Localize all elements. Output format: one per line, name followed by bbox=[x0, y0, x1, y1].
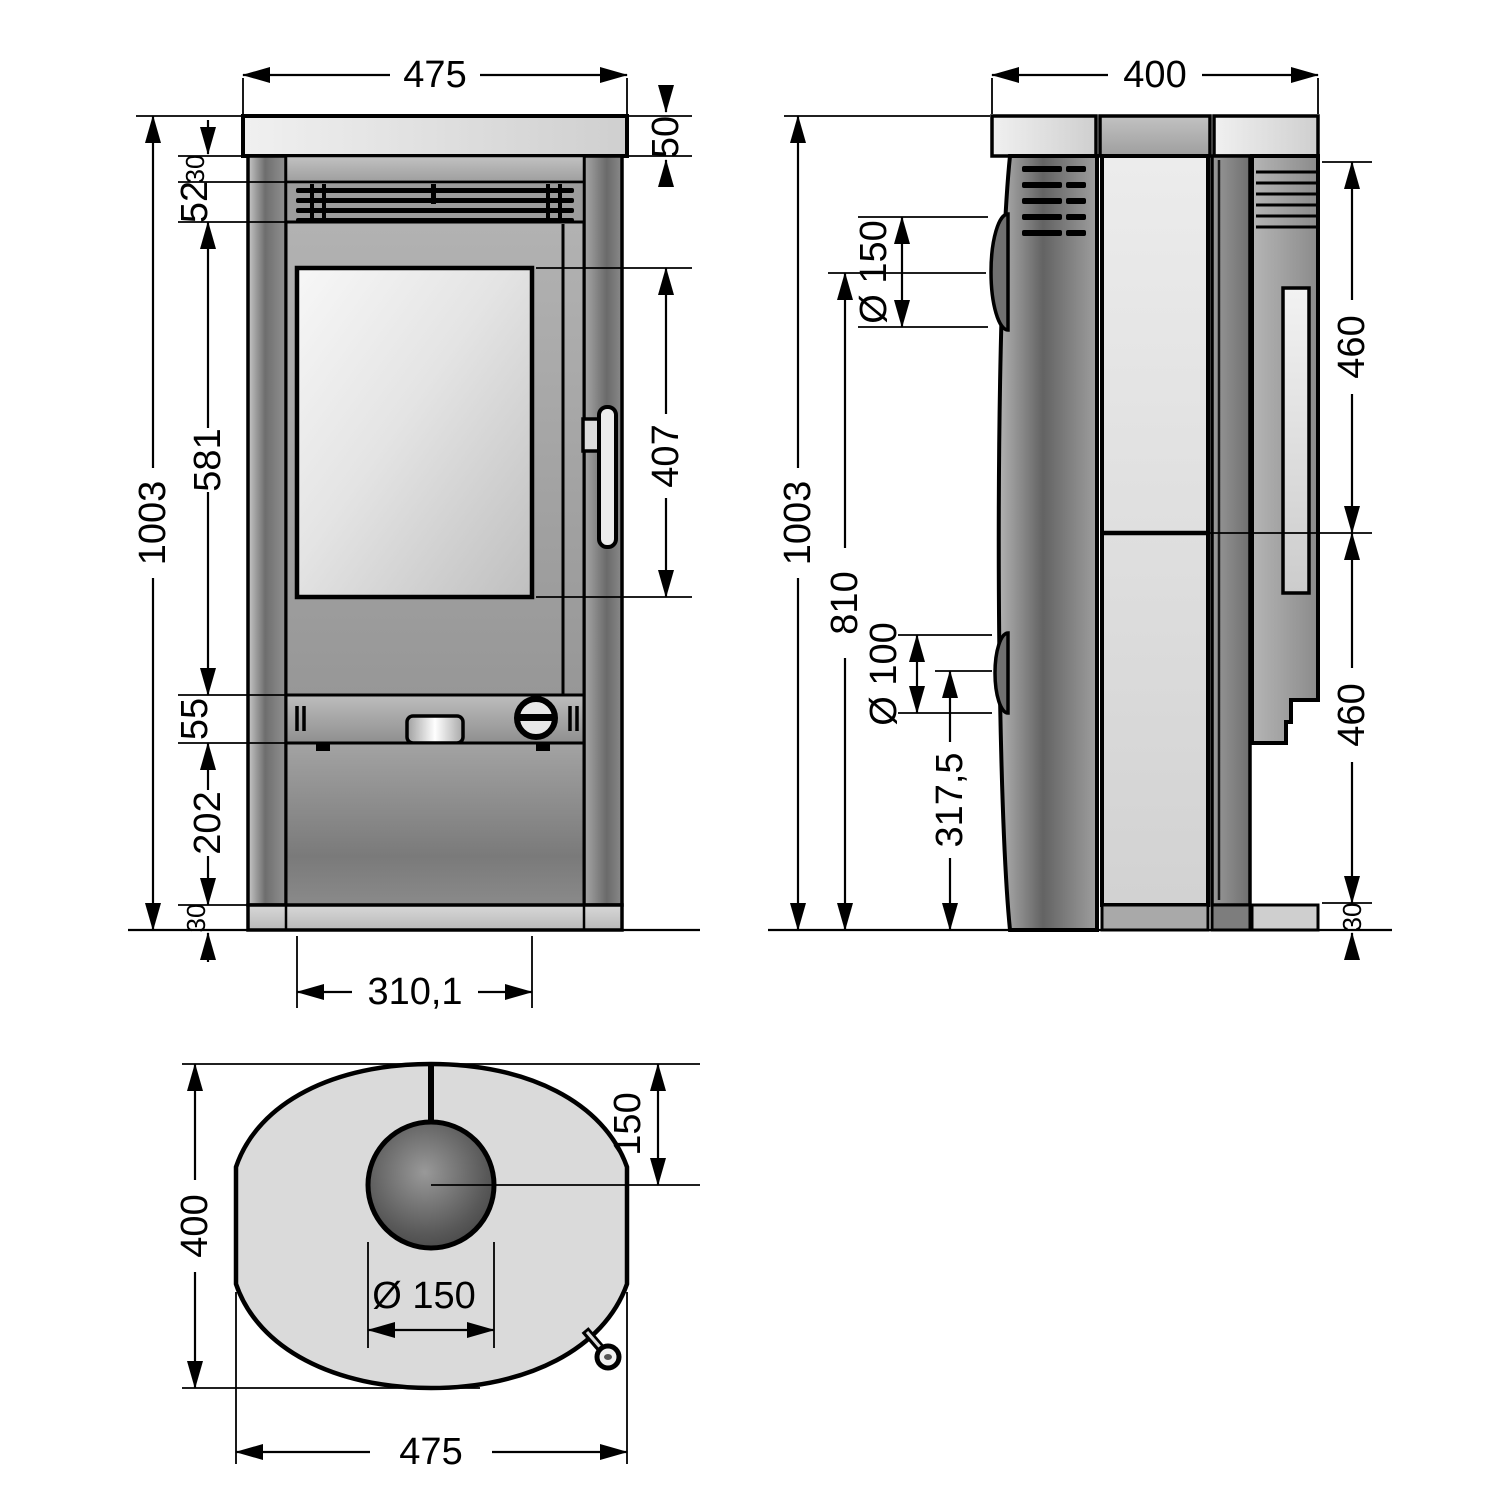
glass-edge-sliver bbox=[1283, 288, 1309, 593]
door-handle bbox=[599, 407, 616, 547]
dim-label-door-area: 581 bbox=[187, 428, 229, 491]
side-top-plate-front bbox=[1214, 116, 1318, 156]
dim-label-outlet-diameter: Ø 100 bbox=[863, 622, 905, 726]
dim-side-depth: 400 bbox=[992, 54, 1318, 114]
panel-nub-right bbox=[536, 743, 550, 751]
dim-label-side-total: 1003 bbox=[777, 481, 819, 566]
dim-label-side-depth: 400 bbox=[1123, 54, 1186, 96]
dim-front-door-width: 310,1 bbox=[297, 936, 532, 1013]
front-view: 475 50 30 52 581 55 202 30 1003 407 bbox=[128, 54, 700, 1013]
left-column bbox=[248, 156, 286, 905]
dim-label-door-width: 310,1 bbox=[367, 971, 462, 1013]
dim-label-front-upper: 460 bbox=[1331, 315, 1373, 378]
stone-side-panel bbox=[1102, 156, 1208, 905]
top-strip bbox=[286, 156, 584, 182]
glass-window bbox=[297, 268, 532, 597]
drawing-svg: 475 50 30 52 581 55 202 30 1003 407 bbox=[0, 0, 1500, 1500]
base-plate bbox=[248, 905, 622, 930]
ash-drawer-handle bbox=[407, 716, 463, 743]
dim-label-plate-height: 50 bbox=[645, 116, 687, 158]
side-view: 400 1003 810 Ø 150 Ø 100 317,5 460 bbox=[768, 54, 1392, 960]
side-base-frame bbox=[1212, 905, 1250, 930]
knob-slot bbox=[520, 714, 552, 721]
dim-side-base: 30 bbox=[1337, 903, 1367, 960]
dim-label-band: 55 bbox=[174, 698, 216, 740]
dim-label-front-width: 475 bbox=[403, 54, 466, 96]
lower-panel bbox=[286, 743, 584, 905]
front-frame-strip bbox=[1212, 156, 1250, 905]
top-view: 400 150 Ø 150 475 bbox=[174, 1064, 700, 1473]
top-plate bbox=[243, 116, 627, 156]
side-top-plate-mid bbox=[1100, 116, 1210, 156]
dim-label-front-lower: 460 bbox=[1331, 683, 1373, 746]
dim-front-plate-height: 50 bbox=[624, 86, 692, 186]
dim-label-flue-diameter: Ø 150 bbox=[853, 220, 895, 324]
dim-label-vent: 52 bbox=[174, 181, 216, 223]
dim-label-top-depth: 400 bbox=[174, 1194, 216, 1257]
dim-label-top-flue-diameter: Ø 150 bbox=[372, 1275, 476, 1317]
dim-side-outlet-diameter: Ø 100 bbox=[863, 622, 992, 726]
dim-side-front-lower: 460 bbox=[1322, 533, 1373, 903]
handle-ball-center bbox=[604, 1354, 612, 1360]
dim-label-outlet-height: 317,5 bbox=[929, 752, 971, 847]
dim-label-top-width: 475 bbox=[399, 1431, 462, 1473]
dim-label-lower-panel: 202 bbox=[187, 791, 229, 854]
outlet-collar-bulge bbox=[995, 633, 1008, 713]
dim-front-width-top: 475 bbox=[243, 54, 627, 114]
dim-label-side-base: 30 bbox=[1337, 903, 1367, 932]
side-base-stone bbox=[1102, 905, 1208, 930]
dim-label-flue-height: 810 bbox=[824, 571, 866, 634]
flue-collar-bulge bbox=[991, 214, 1008, 330]
dim-label-top-strip: 30 bbox=[180, 155, 210, 184]
side-base-front bbox=[1252, 905, 1318, 930]
dim-label-flue-offset: 150 bbox=[607, 1092, 649, 1155]
technical-drawing: 475 50 30 52 581 55 202 30 1003 407 bbox=[0, 0, 1500, 1500]
panel-nub-left bbox=[316, 743, 330, 751]
rear-body bbox=[999, 156, 1097, 930]
dim-side-flue-diameter: Ø 150 bbox=[853, 217, 988, 327]
dim-label-front-total: 1003 bbox=[132, 481, 174, 566]
dim-label-glass-height: 407 bbox=[645, 424, 687, 487]
side-top-plate-rear bbox=[992, 116, 1096, 156]
dim-side-outlet-height: 317,5 bbox=[929, 671, 992, 930]
dim-label-front-base: 30 bbox=[181, 904, 211, 933]
